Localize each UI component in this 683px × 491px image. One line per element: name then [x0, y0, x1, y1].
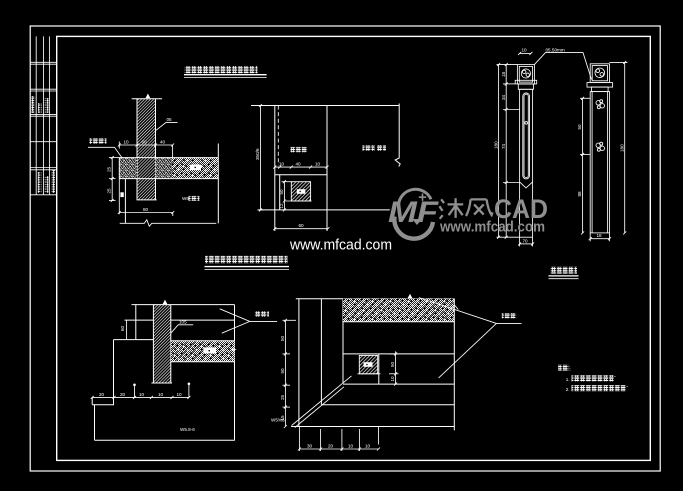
svg-text:10: 10 — [124, 140, 130, 145]
svg-text:1.: 1. — [566, 377, 570, 382]
svg-text:W5.8-6: W5.8-6 — [180, 427, 195, 432]
svg-text:10: 10 — [315, 161, 321, 166]
svg-text:74: 74 — [501, 143, 506, 149]
svg-text:W5%6: W5%6 — [271, 418, 285, 423]
svg-text:40: 40 — [160, 140, 166, 145]
svg-text:50: 50 — [390, 361, 395, 367]
svg-text:10: 10 — [348, 443, 354, 448]
svg-text:25: 25 — [280, 394, 285, 400]
svg-text::: : — [570, 367, 571, 372]
svg-text:12: 12 — [279, 203, 284, 209]
svg-text:2.: 2. — [566, 387, 570, 392]
svg-text:350/6: 350/6 — [255, 148, 260, 160]
svg-text:10: 10 — [139, 392, 145, 397]
svg-text:10: 10 — [522, 48, 528, 53]
svg-text:10: 10 — [365, 443, 371, 448]
svg-text:MF: MF — [388, 196, 439, 229]
svg-text:25: 25 — [107, 166, 112, 172]
svg-text:60: 60 — [120, 325, 125, 331]
svg-text:105: 105 — [179, 319, 187, 324]
svg-text:40: 40 — [296, 161, 302, 166]
svg-text:50: 50 — [280, 368, 285, 374]
svg-text:20: 20 — [99, 392, 105, 397]
svg-text:88: 88 — [577, 191, 582, 197]
svg-text:50: 50 — [279, 189, 284, 195]
svg-text:10: 10 — [177, 392, 183, 397]
svg-text:18: 18 — [501, 71, 506, 77]
svg-text:50: 50 — [280, 335, 285, 341]
svg-text:34: 34 — [501, 94, 506, 100]
svg-text:60: 60 — [299, 223, 305, 228]
svg-text:18: 18 — [597, 233, 603, 238]
svg-text:10: 10 — [158, 392, 164, 397]
svg-text:180: 180 — [493, 141, 498, 149]
svg-text:60: 60 — [142, 140, 148, 145]
svg-text:20: 20 — [120, 392, 126, 397]
svg-text:10: 10 — [390, 376, 395, 382]
svg-text:70: 70 — [523, 238, 529, 243]
svg-text:180: 180 — [619, 144, 624, 152]
svg-text:www.mfcad.com: www.mfcad.com — [289, 238, 392, 254]
svg-text:50: 50 — [577, 124, 582, 130]
svg-text:05: 05 — [167, 117, 173, 122]
svg-text:www.mfcad.com: www.mfcad.com — [439, 219, 545, 236]
svg-text:20: 20 — [328, 443, 334, 448]
svg-text:25: 25 — [107, 188, 112, 194]
svg-text:05.50mm: 05.50mm — [546, 48, 565, 53]
svg-text:10: 10 — [279, 161, 285, 166]
svg-text:W6: W6 — [182, 196, 189, 201]
svg-text:30: 30 — [307, 443, 313, 448]
svg-text:80: 80 — [143, 207, 149, 212]
